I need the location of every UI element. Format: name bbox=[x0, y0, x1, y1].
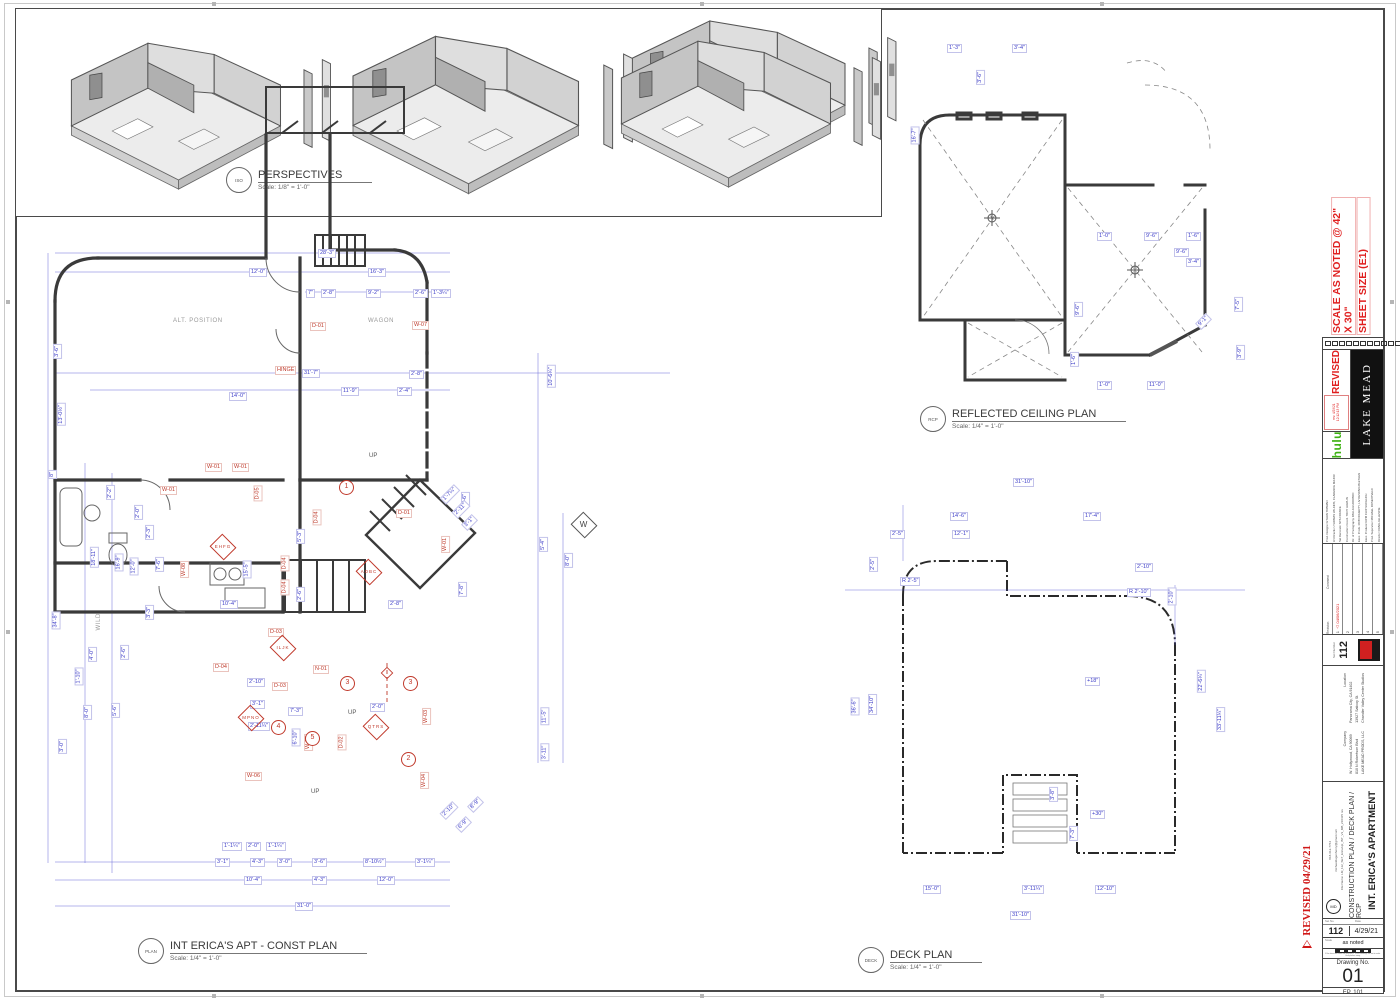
margin-tick bbox=[1390, 630, 1394, 634]
revision-row: 2 bbox=[1343, 544, 1353, 634]
credit-line: Exec. Producer/UPM CHIP VUCELICH bbox=[1364, 460, 1368, 542]
margin-tick bbox=[700, 994, 704, 998]
dept-checkbox-const bbox=[1332, 341, 1338, 347]
dept-checkbox-paint bbox=[1339, 341, 1345, 347]
drawing-title-text: CONSTRUCTION PLAN / DECK PLAN / RCP bbox=[1349, 782, 1363, 918]
perspectives-panel: ISO PERSPECTIVES Scale: 1/8" = 1'-0" bbox=[15, 8, 882, 217]
set-name-text: INT. ERICA'S APARTMENT bbox=[1367, 791, 1378, 910]
date-label: Date bbox=[1353, 919, 1383, 924]
set-number-value: 112 bbox=[1338, 641, 1350, 659]
revised-stamp-label: REVISED bbox=[1323, 350, 1350, 394]
rcp-tag: RCP bbox=[920, 406, 946, 432]
dept-checkbox-s-fx bbox=[1367, 341, 1373, 347]
plan-tag: PLAN bbox=[138, 938, 164, 964]
margin-tick bbox=[6, 630, 10, 634]
dept-checkbox-greens bbox=[1346, 341, 1352, 347]
department-checkboxes bbox=[1323, 338, 1383, 350]
drawing-no-value: 01 bbox=[1323, 966, 1383, 987]
dept-checkbox-art bbox=[1325, 341, 1331, 347]
credit-line: Construction Coord. TROY HAWLIN bbox=[1345, 460, 1349, 542]
margin-tick bbox=[1390, 300, 1394, 304]
deck-plan-drawing bbox=[845, 465, 1245, 945]
company-address: Company W. Hollywood, CA 90069 810 N Rob… bbox=[1323, 731, 1383, 774]
perspective-views bbox=[16, 9, 881, 216]
credit-line: Prod. Supervisor MICHAEL ROSENTVELD bbox=[1370, 460, 1374, 542]
set-no-value: 112 bbox=[1323, 926, 1350, 936]
construction-plan-label: PLAN INT ERICA'S APT - CONST PLAN Scale:… bbox=[138, 938, 367, 964]
credit-line: Dir. of Photography PAULA HUIDOBRO bbox=[1351, 460, 1355, 542]
set-number-row: Set Number 112 bbox=[1323, 635, 1383, 666]
dept-checkbox-transpo bbox=[1395, 341, 1400, 347]
set-number-label: Set Number bbox=[1332, 642, 1336, 658]
title-block: REVISED rev. 4/29/21 12:12:13 PM hulu LA… bbox=[1322, 337, 1384, 994]
credit-line: Set Decorator NYA FRANCE bbox=[1338, 460, 1342, 542]
construction-plan-scale: Scale: 1/4" = 1'-0" bbox=[170, 954, 367, 962]
dept-checkbox-elec bbox=[1388, 341, 1394, 347]
title-block-bottom-rows: Set No. Date 112 4/29/21 Scale as noted … bbox=[1323, 919, 1383, 997]
deck-plan-scale: Scale: 1/4" = 1'-0" bbox=[890, 963, 982, 971]
rcp-drawing bbox=[895, 25, 1245, 405]
iso-tag: ISO bbox=[226, 167, 252, 193]
credit-line: Director CRAIG GILLESPIE bbox=[1377, 460, 1381, 542]
rcp-label: RCP REFLECTED CEILING PLAN Scale: 1/4" =… bbox=[920, 406, 1126, 432]
sheet-size-note: SCALE AS NOTED @ 42" X 30" SHEET SIZE (E… bbox=[1331, 197, 1371, 335]
revision-row: 5 bbox=[1373, 544, 1383, 634]
credit-line: Exec. Prods. ROB DOHERTY, LIV DESPAIN-BL… bbox=[1357, 460, 1361, 542]
drawing-sheet: ISO PERSPECTIVES Scale: 1/8" = 1'-0" bbox=[0, 0, 1400, 1000]
caution-text: If the above bar does not measure 1" the… bbox=[1323, 954, 1383, 958]
perspectives-scale: Scale: 1/8" = 1'-0" bbox=[258, 183, 372, 191]
revised-side-note: REVISED 04/29/21 bbox=[1301, 845, 1313, 975]
revised-side-text: REVISED 04/29/21 bbox=[1301, 845, 1313, 936]
perspectives-title: PERSPECTIVES bbox=[258, 167, 372, 183]
file-contact-lines: 818-612-7764 michaelduganhenry@gmail.com… bbox=[1328, 782, 1344, 918]
margin-tick bbox=[1100, 994, 1104, 998]
date-value: 4/29/21 bbox=[1350, 928, 1383, 935]
margin-tick bbox=[1100, 2, 1104, 6]
margin-tick bbox=[212, 2, 216, 6]
deck-plan-label: DECK DECK PLAN Scale: 1/4" = 1'-0" bbox=[858, 947, 982, 973]
address-block: Location Panorama City, CA 91402 13927 S… bbox=[1323, 666, 1383, 782]
revision-date-stamp: rev. 4/29/21 12:12:13 PM bbox=[1324, 395, 1349, 430]
scale-value: as noted bbox=[1342, 940, 1363, 946]
set-name-block: 818-612-7764 michaelduganhenry@gmail.com… bbox=[1323, 782, 1383, 919]
caution-strip: If the above bar does not measure 1" the… bbox=[1323, 949, 1383, 959]
designer-logo: MD bbox=[1326, 899, 1341, 914]
dept-checkbox-cam bbox=[1374, 341, 1380, 347]
hulu-logo: hulu bbox=[1323, 431, 1350, 458]
revision-table: Comment Revision △ 04/06/202112345 bbox=[1323, 544, 1383, 635]
perspectives-label: ISO PERSPECTIVES Scale: 1/8" = 1'-0" bbox=[226, 167, 372, 193]
deck-tag: DECK bbox=[858, 947, 884, 973]
sheet-size-line2: SCALE AS NOTED @ 42" X 30" bbox=[1331, 197, 1356, 335]
studio-logo-mark bbox=[1358, 639, 1380, 661]
credit-line: Art Direction THOMAS WILKINS, CLARENCE M… bbox=[1332, 460, 1336, 542]
credit-line: Prod. Designer ETHAN TOBMAN bbox=[1325, 460, 1329, 542]
production-credits: Prod. Designer ETHAN TOBMANArt Direction… bbox=[1323, 459, 1383, 544]
revision-row: 4 bbox=[1363, 544, 1373, 634]
margin-tick bbox=[212, 994, 216, 998]
set-no-label: Set No. bbox=[1323, 919, 1353, 924]
construction-plan-drawing bbox=[30, 233, 730, 933]
scale-label: Scale bbox=[1325, 938, 1332, 942]
revision-table-header: Comment Revision bbox=[1323, 544, 1333, 634]
dept-checkbox-set-dec bbox=[1360, 341, 1366, 347]
revision-triangle-icon bbox=[1302, 940, 1312, 948]
margin-tick bbox=[6, 300, 10, 304]
studio-address: Location Panorama City, CA 91402 13927 S… bbox=[1323, 673, 1383, 723]
lake-mead-logo: LAKE MEAD bbox=[1351, 350, 1383, 458]
dept-checkbox-rig-elec bbox=[1353, 341, 1359, 347]
sheet-size-line1: SHEET SIZE (E1) bbox=[1357, 197, 1371, 335]
construction-plan-title: INT ERICA'S APT - CONST PLAN bbox=[170, 938, 367, 954]
rcp-scale: Scale: 1/4" = 1'-0" bbox=[952, 422, 1126, 430]
revision-row: △ 04/06/20211 bbox=[1333, 544, 1343, 634]
dept-checkbox-grip bbox=[1381, 341, 1387, 347]
deck-plan-title: DECK PLAN bbox=[890, 947, 982, 963]
margin-tick bbox=[700, 2, 704, 6]
rcp-title: REFLECTED CEILING PLAN bbox=[952, 406, 1126, 422]
revision-row: 3 bbox=[1353, 544, 1363, 634]
episode-number: EP. 101 bbox=[1323, 987, 1383, 997]
